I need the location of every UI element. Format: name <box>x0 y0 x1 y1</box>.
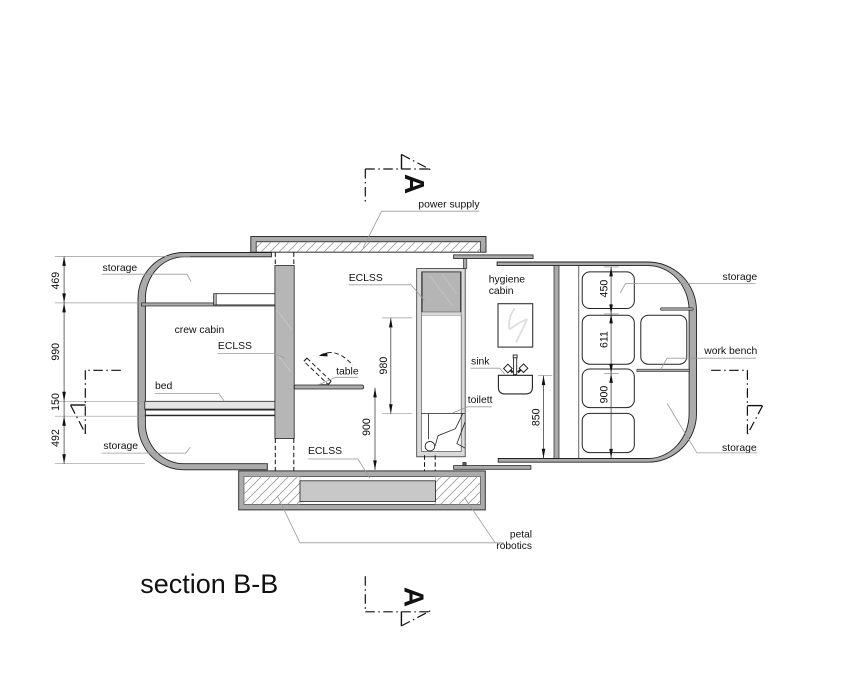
svg-text:toilett: toilett <box>468 395 493 406</box>
svg-text:ECLSS: ECLSS <box>308 446 342 457</box>
svg-text:sink: sink <box>471 357 490 368</box>
svg-text:crew cabin: crew cabin <box>175 325 225 336</box>
svg-text:ECLSS: ECLSS <box>218 341 252 352</box>
svg-text:150: 150 <box>50 393 62 411</box>
svg-text:bed: bed <box>155 381 173 392</box>
svg-text:storage: storage <box>722 443 757 454</box>
svg-text:A: A <box>399 174 430 194</box>
svg-text:storage: storage <box>723 272 758 283</box>
svg-text:469: 469 <box>50 272 62 290</box>
svg-text:table: table <box>336 367 359 378</box>
svg-text:hygiene: hygiene <box>489 274 526 285</box>
svg-text:611: 611 <box>598 331 610 348</box>
svg-text:450: 450 <box>598 280 610 298</box>
svg-text:power supply: power supply <box>418 200 480 211</box>
svg-text:492: 492 <box>50 429 62 447</box>
svg-text:storage: storage <box>103 263 138 274</box>
svg-text:900: 900 <box>361 418 373 436</box>
svg-text:980: 980 <box>378 357 390 375</box>
svg-text:850: 850 <box>531 408 543 426</box>
svg-text:cabin: cabin <box>489 286 514 297</box>
svg-text:storage: storage <box>103 441 138 452</box>
svg-text:900: 900 <box>598 386 610 404</box>
svg-text:A: A <box>399 587 430 607</box>
svg-text:section B-B: section B-B <box>140 569 278 599</box>
svg-text:ECLSS: ECLSS <box>349 273 383 284</box>
svg-text:petal: petal <box>510 529 532 540</box>
svg-text:work bench: work bench <box>703 346 757 357</box>
svg-text:990: 990 <box>50 343 62 361</box>
